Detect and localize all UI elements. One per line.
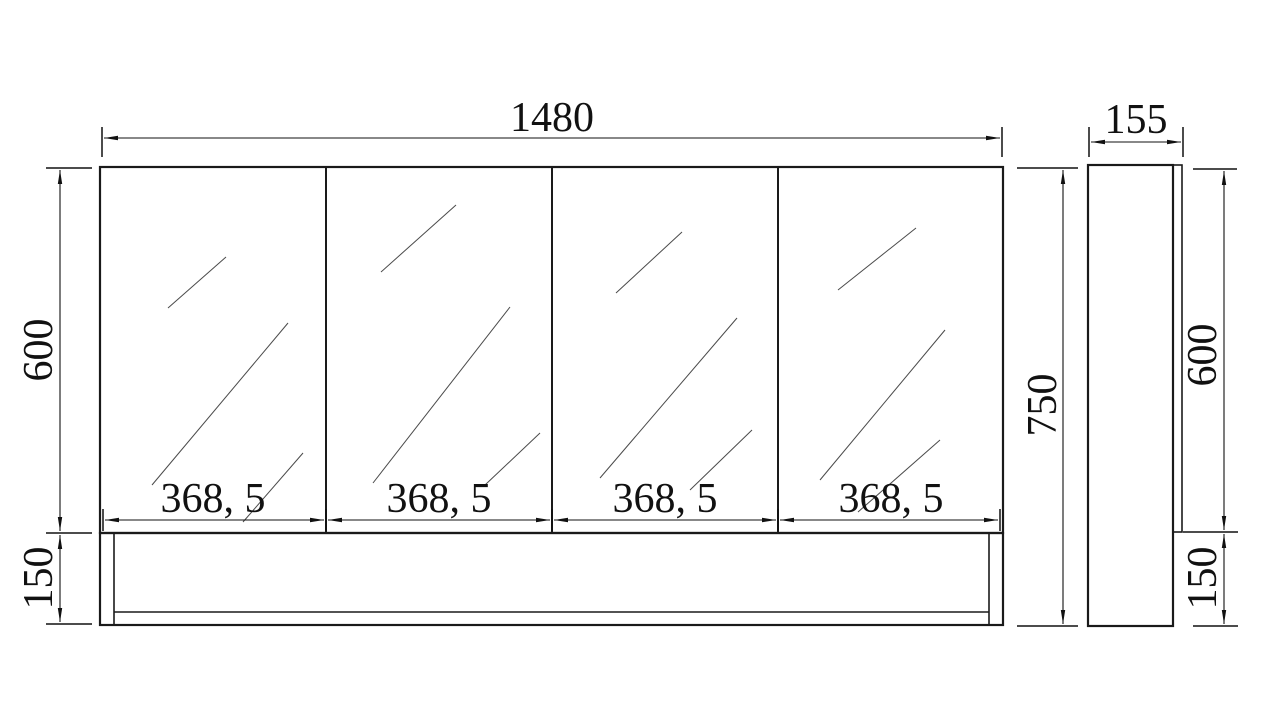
dim-side-heights: 600 150 (1180, 169, 1238, 626)
dim-label-front-door-height: 600 (16, 319, 62, 382)
front-view (100, 167, 1003, 625)
dim-front-total-width: 1480 (102, 95, 1002, 157)
dim-label-side-base-height: 150 (1180, 547, 1226, 610)
dim-front-total-height: 750 (1017, 168, 1078, 626)
mirror-door-2-glass-lines (373, 205, 540, 485)
mirror-door-3-glass-lines (600, 232, 752, 490)
dim-front-left-heights: 600 150 (16, 168, 92, 624)
dim-label-side-depth: 155 (1105, 97, 1168, 143)
dim-label-door-width-2: 368, 5 (387, 476, 492, 522)
cad-sheet: 1480 368, 5 368, 5 368, 5 368, 5 600 150… (0, 0, 1282, 728)
dim-label-door-width-4: 368, 5 (839, 476, 944, 522)
base-shelf (100, 533, 1003, 625)
side-view (1088, 165, 1182, 626)
dim-label-total-width: 1480 (510, 95, 594, 141)
side-body-outline (1088, 165, 1173, 626)
dim-label-side-door-height: 600 (1180, 324, 1226, 387)
mirror-door-4-glass-lines (820, 228, 945, 512)
dim-label-door-width-1: 368, 5 (161, 476, 266, 522)
dim-label-total-height: 750 (1020, 374, 1066, 437)
cabinet-dimension-drawing: 1480 368, 5 368, 5 368, 5 368, 5 600 150… (0, 0, 1282, 728)
dim-label-front-base-height: 150 (16, 547, 62, 610)
dim-side-depth: 155 (1089, 97, 1183, 157)
dim-label-door-width-3: 368, 5 (613, 476, 718, 522)
